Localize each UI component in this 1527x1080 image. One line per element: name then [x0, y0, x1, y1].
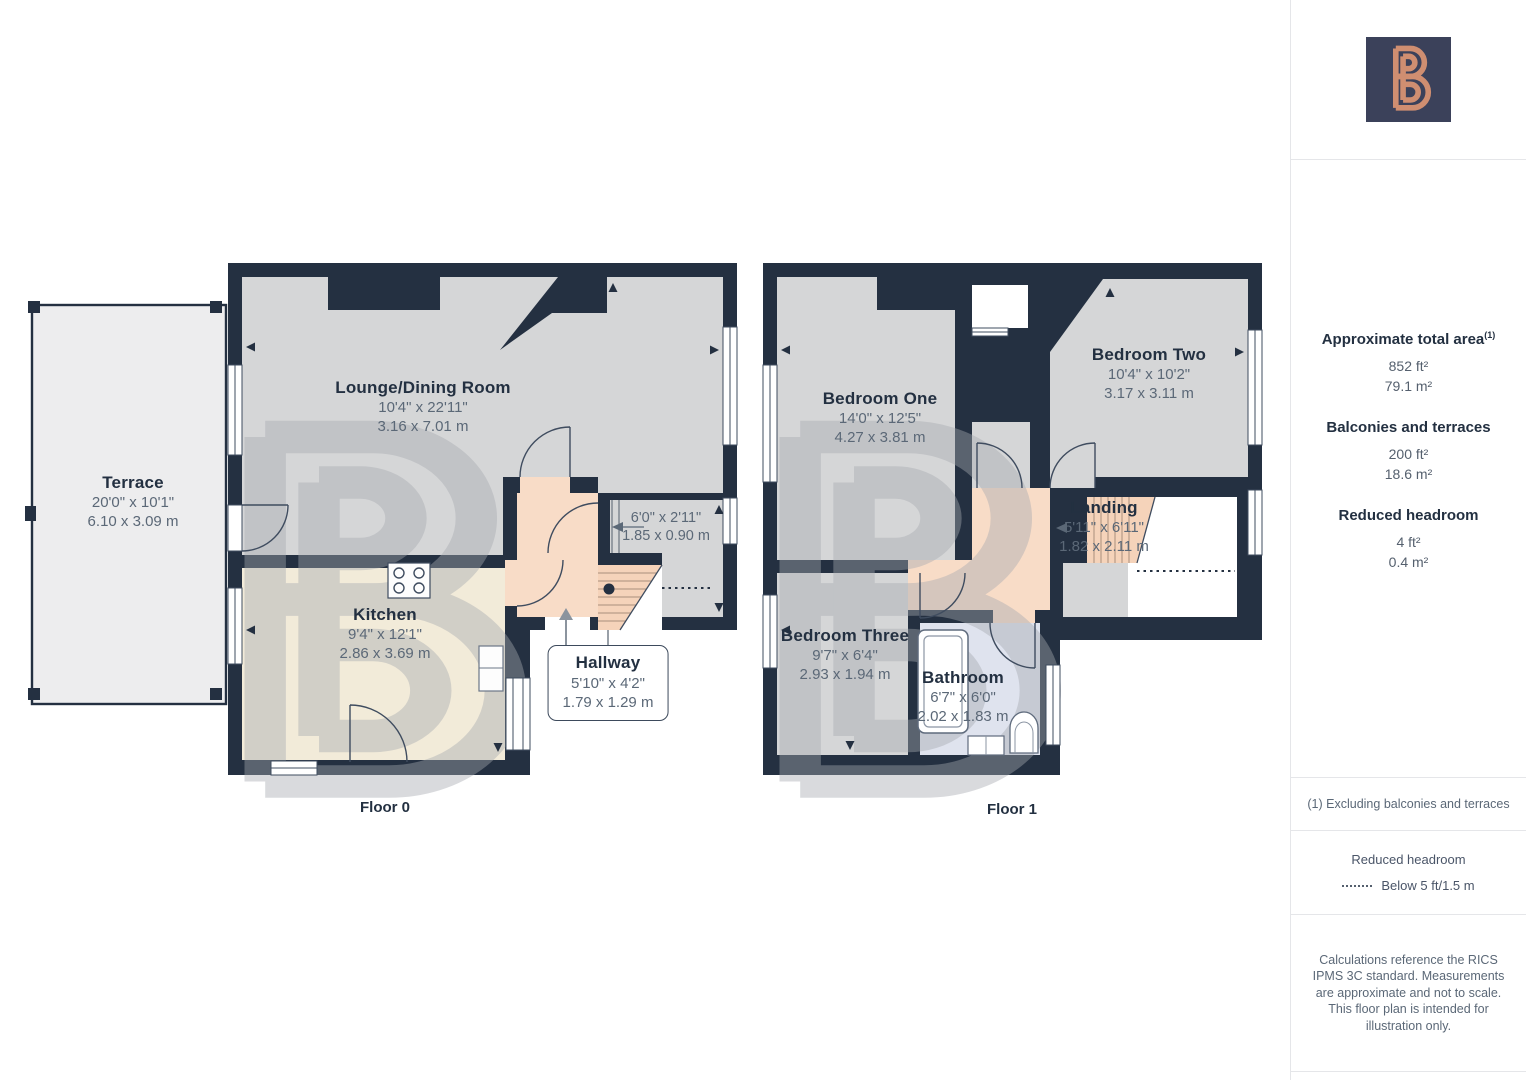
reduced-headroom-block: Reduced headroom 4 ft² 0.4 m²	[1338, 506, 1478, 572]
room-label-bedroom-two: Bedroom Two 10'4" x 10'2" 3.17 x 3.11 m	[1092, 344, 1206, 403]
dotted-line-swatch	[1342, 885, 1372, 887]
balconies-m: 18.6 m²	[1326, 464, 1490, 484]
corridor-dimensions: 6'0" x 2'11" 1.85 x 0.90 m	[622, 509, 710, 545]
reduced-ft: 4 ft²	[1338, 532, 1478, 552]
floor0-label: Floor 0	[360, 799, 410, 816]
footnote-section: (1) Excluding balconies and terraces	[1291, 778, 1526, 831]
brand-logo-icon	[1366, 37, 1451, 122]
balconies-ft: 200 ft²	[1326, 444, 1490, 464]
legend-section: Reduced headroom Below 5 ft/1.5 m	[1291, 831, 1526, 915]
toilet-icon	[1010, 712, 1038, 753]
brand-logo-section	[1291, 0, 1526, 160]
room-label-bedroom-one: Bedroom One 14'0" x 12'5" 4.27 x 3.81 m	[823, 388, 938, 447]
hob-icon	[388, 563, 430, 598]
room-label-kitchen: Kitchen 9'4" x 12'1" 2.86 x 3.69 m	[340, 604, 431, 663]
reduced-title: Reduced headroom	[1338, 506, 1478, 525]
room-label-bedroom-three: Bedroom Three 9'7" x 6'4" 2.93 x 1.94 m	[781, 625, 909, 684]
balconies-area-block: Balconies and terraces 200 ft² 18.6 m²	[1326, 418, 1490, 484]
balconies-title: Balconies and terraces	[1326, 418, 1490, 437]
room-label-landing: Landing 5'11" x 6'11" 1.82 x 2.11 m	[1059, 497, 1149, 556]
total-area-block: Approximate total area(1) 852 ft² 79.1 m…	[1322, 326, 1496, 396]
legend-item-text: Below 5 ft/1.5 m	[1381, 878, 1474, 893]
hallway-callout: Hallway 5'10" x 4'2" 1.79 x 1.29 m	[548, 645, 669, 721]
total-area-title: Approximate total area	[1322, 331, 1485, 348]
disclaimer-section: Calculations reference the RICS IPMS 3C …	[1291, 915, 1526, 1072]
kitchen-sink-icon	[479, 646, 503, 691]
area-summary-section: Approximate total area(1) 852 ft² 79.1 m…	[1291, 160, 1526, 778]
room-label-bathroom: Bathroom 6'7" x 6'0" 2.02 x 1.83 m	[918, 667, 1009, 726]
bathroom-sink-icon	[968, 736, 1004, 755]
disclaimer-text: Calculations reference the RICS IPMS 3C …	[1311, 952, 1506, 1035]
reduced-m: 0.4 m²	[1338, 552, 1478, 572]
legend-title: Reduced headroom	[1351, 852, 1465, 867]
floor1-label: Floor 1	[987, 801, 1037, 818]
floor1-plan	[763, 263, 1262, 782]
total-area-m: 79.1 m²	[1322, 376, 1496, 396]
total-area-ft: 852 ft²	[1322, 356, 1496, 376]
room-label-lounge-dining: Lounge/Dining Room 10'4" x 22'11" 3.16 x…	[335, 377, 510, 436]
footnote-text: (1) Excluding balconies and terraces	[1307, 797, 1509, 811]
info-sidebar: Approximate total area(1) 852 ft² 79.1 m…	[1290, 0, 1526, 1080]
room-label-terrace: Terrace 20'0" x 10'1" 6.10 x 3.09 m	[88, 472, 179, 531]
floorplan-page: Terrace 20'0" x 10'1" 6.10 x 3.09 m Loun…	[0, 0, 1527, 1080]
footnote-mark: (1)	[1484, 330, 1495, 340]
